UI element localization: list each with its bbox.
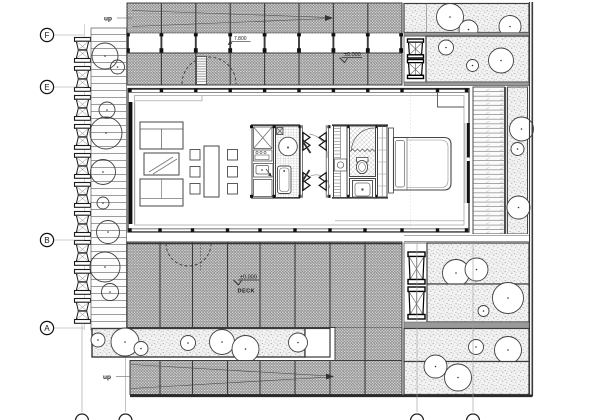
svg-text:B: B (44, 236, 50, 245)
svg-text:F: F (44, 31, 49, 40)
svg-text:E: E (44, 83, 50, 92)
svg-text:DECK: DECK (238, 289, 255, 295)
svg-text:A: A (44, 324, 50, 333)
svg-text:±0.000: ±0.000 (240, 275, 257, 281)
svg-text:up: up (103, 374, 111, 381)
svg-text:up: up (104, 16, 112, 23)
